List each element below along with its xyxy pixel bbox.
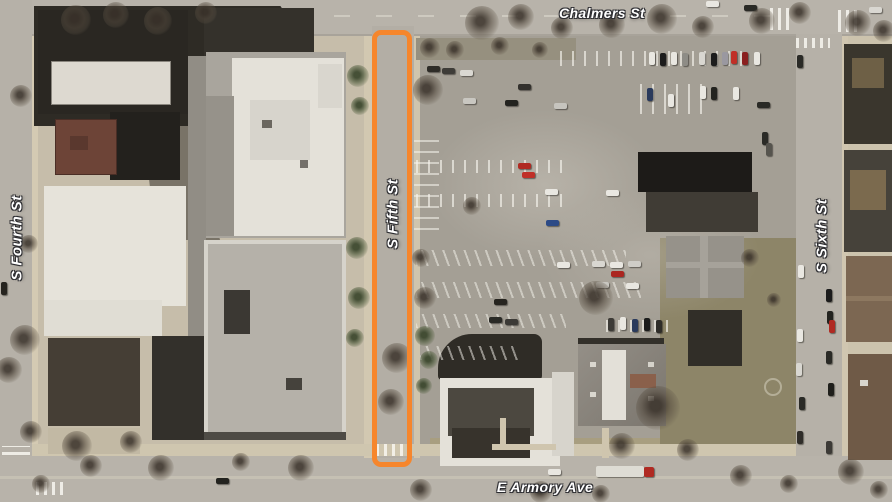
tree xyxy=(348,287,370,309)
tree xyxy=(10,85,32,107)
dormer xyxy=(860,380,868,386)
crosswalk xyxy=(2,446,30,455)
aerial-map[interactable]: Chalmers St S Fourth St S Fifth St S Six… xyxy=(0,0,892,502)
car xyxy=(668,94,674,107)
car xyxy=(546,220,559,226)
car xyxy=(518,84,531,90)
street-label-fourth: S Fourth St xyxy=(9,195,26,280)
roof-center-white xyxy=(602,350,626,420)
tree xyxy=(463,197,481,215)
rooftop-section xyxy=(250,100,310,160)
car xyxy=(671,52,677,65)
truck-trailer xyxy=(596,466,644,477)
car xyxy=(660,53,666,66)
car xyxy=(548,469,561,475)
street-label-chalmers: Chalmers St xyxy=(559,5,645,21)
building-dark-roof xyxy=(638,152,752,192)
car xyxy=(699,52,705,65)
tree xyxy=(347,65,369,87)
car xyxy=(796,363,802,376)
tree xyxy=(120,431,142,453)
car xyxy=(711,53,717,66)
car xyxy=(608,318,614,331)
car xyxy=(656,320,662,333)
building-gray-concrete-roof xyxy=(204,240,346,438)
tree xyxy=(692,16,714,38)
car xyxy=(869,7,882,13)
car xyxy=(797,329,803,342)
car xyxy=(522,172,535,178)
car xyxy=(610,262,623,268)
tree xyxy=(420,351,438,369)
rooftop-unit xyxy=(286,378,302,390)
car xyxy=(826,441,832,454)
tree xyxy=(232,453,250,471)
tree xyxy=(780,475,798,493)
tree xyxy=(420,38,440,58)
tree xyxy=(446,41,464,59)
tree xyxy=(491,37,509,55)
car xyxy=(742,52,748,65)
tree xyxy=(870,481,888,499)
car xyxy=(797,55,803,68)
building-white-roof xyxy=(44,300,162,336)
street-label-armory: E Armory Ave xyxy=(497,479,593,495)
tree xyxy=(195,2,217,24)
tree xyxy=(412,249,430,267)
car xyxy=(518,163,531,169)
building-shadow xyxy=(204,8,314,56)
car xyxy=(545,189,558,195)
car xyxy=(826,351,832,364)
building-dark-flat-roof xyxy=(688,310,742,366)
car xyxy=(757,102,770,108)
car xyxy=(798,265,804,278)
rooftop-section xyxy=(452,428,530,458)
roof-ridge xyxy=(666,262,744,268)
tree xyxy=(508,4,534,30)
car xyxy=(799,397,805,410)
car xyxy=(826,289,832,302)
walkway xyxy=(602,428,609,458)
tree xyxy=(413,75,443,105)
tree xyxy=(32,475,50,493)
building-white-roof xyxy=(44,186,186,306)
tree xyxy=(636,386,680,430)
car xyxy=(592,261,605,267)
tree xyxy=(749,8,775,34)
car xyxy=(620,317,626,330)
car xyxy=(829,320,835,333)
car xyxy=(700,86,706,99)
building-brown-roof-house xyxy=(848,354,892,460)
car xyxy=(460,70,473,76)
car xyxy=(554,103,567,109)
building-white-roof xyxy=(52,62,170,104)
dormer xyxy=(590,362,596,367)
lawn-circle-feature xyxy=(764,378,782,396)
car xyxy=(442,68,455,74)
truck-cab xyxy=(644,467,654,477)
tree xyxy=(148,455,174,481)
tree xyxy=(346,237,368,259)
tree xyxy=(609,433,635,459)
building-west-wing xyxy=(206,96,234,236)
building-south-edge xyxy=(204,432,346,440)
dormer xyxy=(648,362,654,367)
tree xyxy=(789,2,811,24)
street-label-sixth: S Sixth St xyxy=(814,199,831,273)
building-dark-brown-roof xyxy=(48,338,140,426)
car xyxy=(828,383,834,396)
car xyxy=(731,51,737,64)
car xyxy=(505,319,518,325)
lane-line xyxy=(0,476,892,479)
tree xyxy=(346,329,364,347)
car xyxy=(797,431,803,444)
car xyxy=(427,66,440,72)
tree xyxy=(103,2,129,28)
tree xyxy=(144,7,172,35)
car xyxy=(611,271,624,277)
tree xyxy=(741,249,759,267)
tree xyxy=(20,421,42,443)
dormer xyxy=(590,392,596,397)
rooftop-unit xyxy=(262,120,272,128)
car xyxy=(628,261,641,267)
tree xyxy=(61,5,91,35)
walkway xyxy=(500,418,506,448)
roof-ridge xyxy=(846,296,892,301)
tree xyxy=(647,4,677,34)
building-dark-roof xyxy=(152,336,204,440)
tree xyxy=(845,10,871,36)
car xyxy=(706,1,719,7)
tree xyxy=(838,459,864,485)
tree xyxy=(677,439,699,461)
rooftop-unit xyxy=(70,136,88,150)
car xyxy=(505,100,518,106)
tree xyxy=(416,378,432,394)
car xyxy=(722,52,728,65)
car xyxy=(644,318,650,331)
tree xyxy=(532,42,548,58)
tree xyxy=(465,6,499,40)
car xyxy=(463,98,476,104)
rooftop-section xyxy=(850,170,886,210)
rooftop-unit xyxy=(300,160,308,168)
car xyxy=(632,319,638,332)
car xyxy=(754,52,760,65)
tree xyxy=(873,20,892,42)
tree xyxy=(80,455,102,477)
rooftop-unit xyxy=(224,290,250,334)
parking-stripes xyxy=(414,140,439,230)
car xyxy=(1,282,7,295)
car xyxy=(733,87,739,100)
tree xyxy=(414,287,436,309)
tree xyxy=(592,485,610,502)
tree xyxy=(730,465,752,487)
car xyxy=(489,317,502,323)
car xyxy=(626,283,639,289)
highlight-rectangle[interactable] xyxy=(372,30,412,467)
tree xyxy=(10,325,40,355)
parking-stripes xyxy=(606,320,672,332)
car xyxy=(649,52,655,65)
car xyxy=(647,88,653,101)
crosswalk xyxy=(796,38,830,48)
rooftop-section xyxy=(852,58,884,88)
tree xyxy=(767,293,781,307)
tree xyxy=(351,97,369,115)
car xyxy=(557,262,570,268)
car xyxy=(711,87,717,100)
tree xyxy=(288,455,314,481)
tree xyxy=(579,281,613,315)
building-dark-roof xyxy=(110,112,180,180)
car xyxy=(682,53,688,66)
car xyxy=(606,190,619,196)
car xyxy=(494,299,507,305)
tree xyxy=(415,326,435,346)
tree xyxy=(410,479,432,501)
car xyxy=(766,143,772,156)
car xyxy=(216,478,229,484)
building-dark-roof xyxy=(646,192,758,232)
rooftop-section xyxy=(318,64,342,108)
